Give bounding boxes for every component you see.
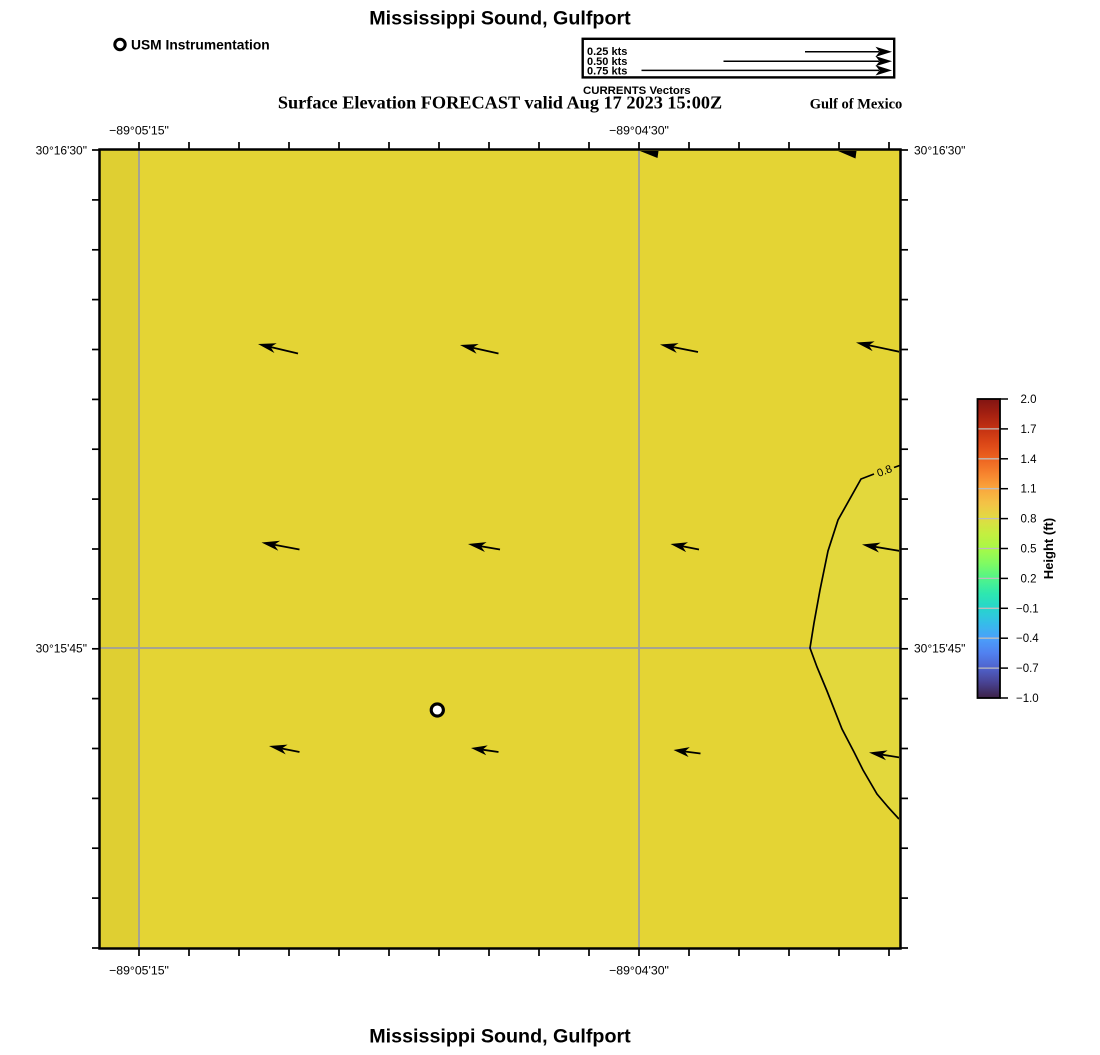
svg-text:−89°04'30": −89°04'30" <box>609 964 669 978</box>
svg-text:30°15'45": 30°15'45" <box>914 642 965 656</box>
svg-text:−89°05'15": −89°05'15" <box>109 964 169 978</box>
svg-text:Height (ft): Height (ft) <box>1041 518 1056 579</box>
svg-text:−1.0: −1.0 <box>1016 693 1039 705</box>
svg-text:−0.4: −0.4 <box>1016 633 1039 645</box>
svg-text:1.1: 1.1 <box>1021 484 1037 496</box>
svg-text:Gulf of Mexico: Gulf of Mexico <box>810 97 903 113</box>
svg-text:−89°04'30": −89°04'30" <box>609 123 669 137</box>
svg-text:1.7: 1.7 <box>1021 424 1037 436</box>
svg-text:0.75 kts: 0.75 kts <box>587 66 627 78</box>
svg-text:30°16'30": 30°16'30" <box>914 144 965 158</box>
svg-text:2.0: 2.0 <box>1021 394 1037 406</box>
svg-text:−89°05'15": −89°05'15" <box>109 123 169 137</box>
svg-text:1.4: 1.4 <box>1021 454 1038 466</box>
svg-text:Mississippi Sound, Gulfport: Mississippi Sound, Gulfport <box>369 1026 631 1048</box>
svg-text:30°16'30": 30°16'30" <box>36 144 87 158</box>
svg-text:Mississippi Sound, Gulfport: Mississippi Sound, Gulfport <box>369 8 631 30</box>
svg-text:0.8: 0.8 <box>1021 514 1037 526</box>
svg-text:−0.7: −0.7 <box>1016 663 1039 675</box>
svg-text:0.2: 0.2 <box>1021 573 1037 585</box>
svg-text:−0.1: −0.1 <box>1016 603 1039 615</box>
svg-text:Surface Elevation FORECAST val: Surface Elevation FORECAST valid Aug 17 … <box>278 93 722 113</box>
svg-text:USM Instrumentation: USM Instrumentation <box>131 38 270 53</box>
svg-text:30°15'45": 30°15'45" <box>36 642 87 656</box>
svg-text:0.5: 0.5 <box>1021 544 1037 556</box>
